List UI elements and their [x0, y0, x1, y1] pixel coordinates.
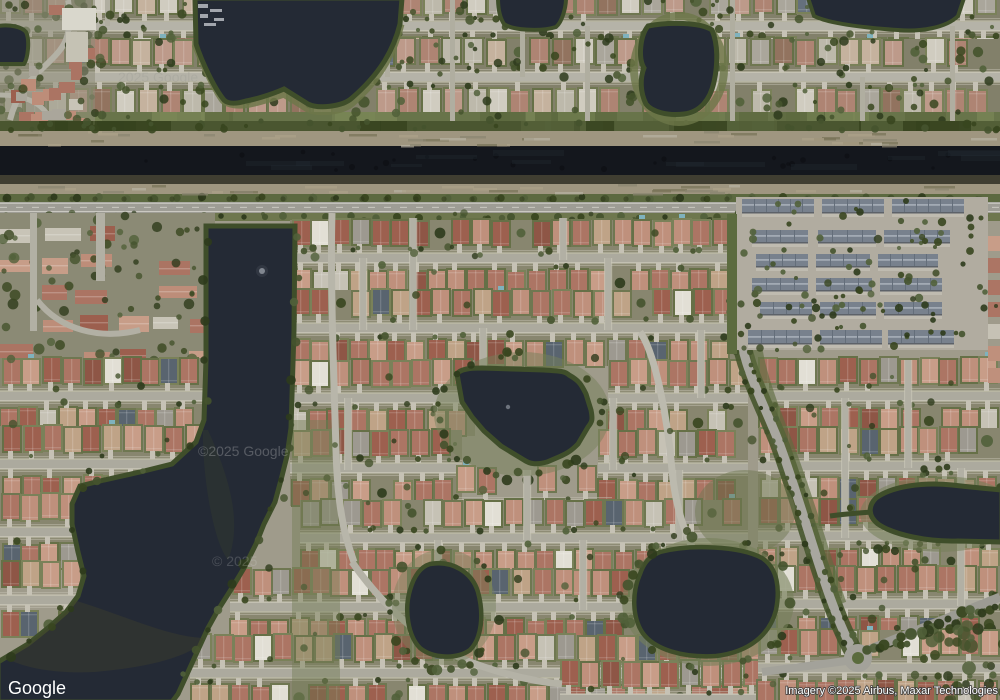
svg-text:Google: Google — [8, 678, 66, 698]
svg-text:2025 Google: 2025 Google — [118, 69, 198, 85]
svg-text:Imagery ©2025 Airbus, Maxar Te: Imagery ©2025 Airbus, Maxar Technologies — [785, 685, 998, 697]
svg-text:©2025 Google: ©2025 Google — [198, 443, 289, 459]
svg-text:© 2025: © 2025 — [212, 553, 258, 569]
